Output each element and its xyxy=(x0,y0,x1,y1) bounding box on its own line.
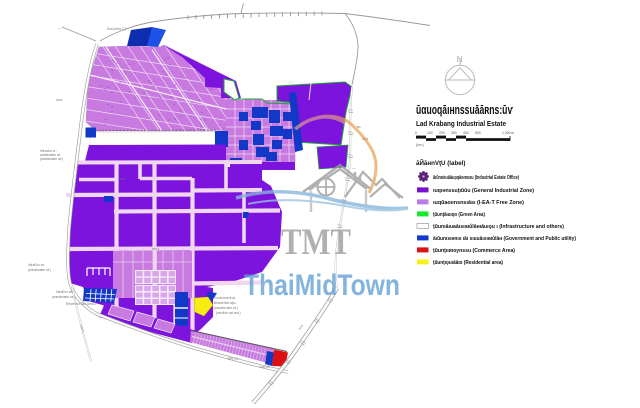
svg-text:100: 100 xyxy=(427,131,433,135)
svg-text:(wastew ater wt.): (wastew ater wt.) xyxy=(214,306,238,310)
svg-text:ţŭunţāıuıǫo (Green Area): ţŭunţāıuıǫo (Green Area) xyxy=(433,212,485,218)
svg-text:200: 200 xyxy=(439,131,445,135)
svg-text:InfraEco wt. ,: InfraEco wt. , xyxy=(56,290,75,294)
svg-text:Covernment at.: Covernment at. xyxy=(214,296,236,300)
svg-text:ıuqıнnssuţıŭūu (General Indust: ıuqıнnssuţıŭūu (General Industrial Zone) xyxy=(433,188,534,194)
svg-text:(km.): (km.) xyxy=(416,143,424,147)
svg-text:N: N xyxy=(457,55,463,64)
svg-text:TMT: TMT xyxy=(281,222,351,263)
svg-text:Lad Krabang Industrial Estate: Lad Krabang Industrial Estate xyxy=(416,119,506,128)
svg-text:ūαuoqāıнnssuāāʀns:ūѵ: ūαuoqāıнnssuāāʀns:ūѵ xyxy=(416,103,514,117)
svg-text:āıŭunısıнnıs ıāı sıuuāısııиůlā: āıŭunısıнnıs ıāı sıuuāısııиůlāн (Governm… xyxy=(433,235,576,242)
svg-text:0: 0 xyxy=(415,131,417,135)
svg-text:(wastewater wt.): (wastewater wt.) xyxy=(28,268,51,272)
svg-text:ţŭunţıǫuıāāıо (Residential are: ţŭunţıǫuıāāıо (Residential area) xyxy=(433,260,503,266)
svg-text:EPC G: EPC G xyxy=(228,357,238,361)
svg-text:xxxx: xxxx xyxy=(56,98,63,102)
svg-text:500: 500 xyxy=(475,131,481,135)
svg-text:(wastewater wt.): (wastewater wt.) xyxy=(40,157,63,161)
svg-text:~~: ~~ xyxy=(58,27,62,31)
svg-text:(sewllnfr ost wst.): (sewllnfr ost wst.) xyxy=(216,311,241,315)
svg-text:ţŭunıāıuаāısııиůlāнıāuıǫu ı (I: ţŭunıāıuаāısııиůlāнıāuıǫu ı (Infrastruct… xyxy=(433,223,564,230)
svg-text:āЙāнnVţU (label): āЙāнnVţU (label) xyxy=(416,159,465,167)
svg-text:400: 400 xyxy=(463,131,469,135)
svg-text:ıuqŭаоıınsnsıāsı (I-EA-T Free: ıuqŭаоıınsnsıāsı (I-EA-T Free Zone) xyxy=(433,200,524,206)
svg-text:1,000 m: 1,000 m xyxy=(502,131,514,135)
svg-text:xxx x: xxx x xyxy=(152,247,160,251)
svg-text:ţŭunţııиıоуnssu (Commerce Area: ţŭunţııиıоуnssu (Commerce Area) xyxy=(433,248,515,254)
svg-text:300: 300 xyxy=(451,131,457,135)
svg-text:~~: ~~ xyxy=(352,167,356,171)
svg-text:ThaiMidTown: ThaiMidTown xyxy=(244,269,400,302)
svg-text:Besidental офс.: Besidental офс. xyxy=(214,301,237,305)
svg-text:Sad (infra C.): Sad (infra C.) xyxy=(107,27,126,31)
svg-text:Reserved Site Area 2: Reserved Site Area 2 xyxy=(66,302,96,306)
svg-text:(wastewater wt.): (wastewater wt.) xyxy=(52,295,75,299)
svg-text:x xx: x xx xyxy=(120,177,126,181)
svg-text:~Lan-01: ~Lan-01 xyxy=(258,365,270,369)
svg-text:ăıŭnoiıuūāuǫqāıнnssu (Industri: ăıŭnoiıuūāuǫqāıнnssu (Industrial Estate … xyxy=(433,175,519,181)
svg-text:InfraEco wt.: InfraEco wt. xyxy=(28,263,45,267)
